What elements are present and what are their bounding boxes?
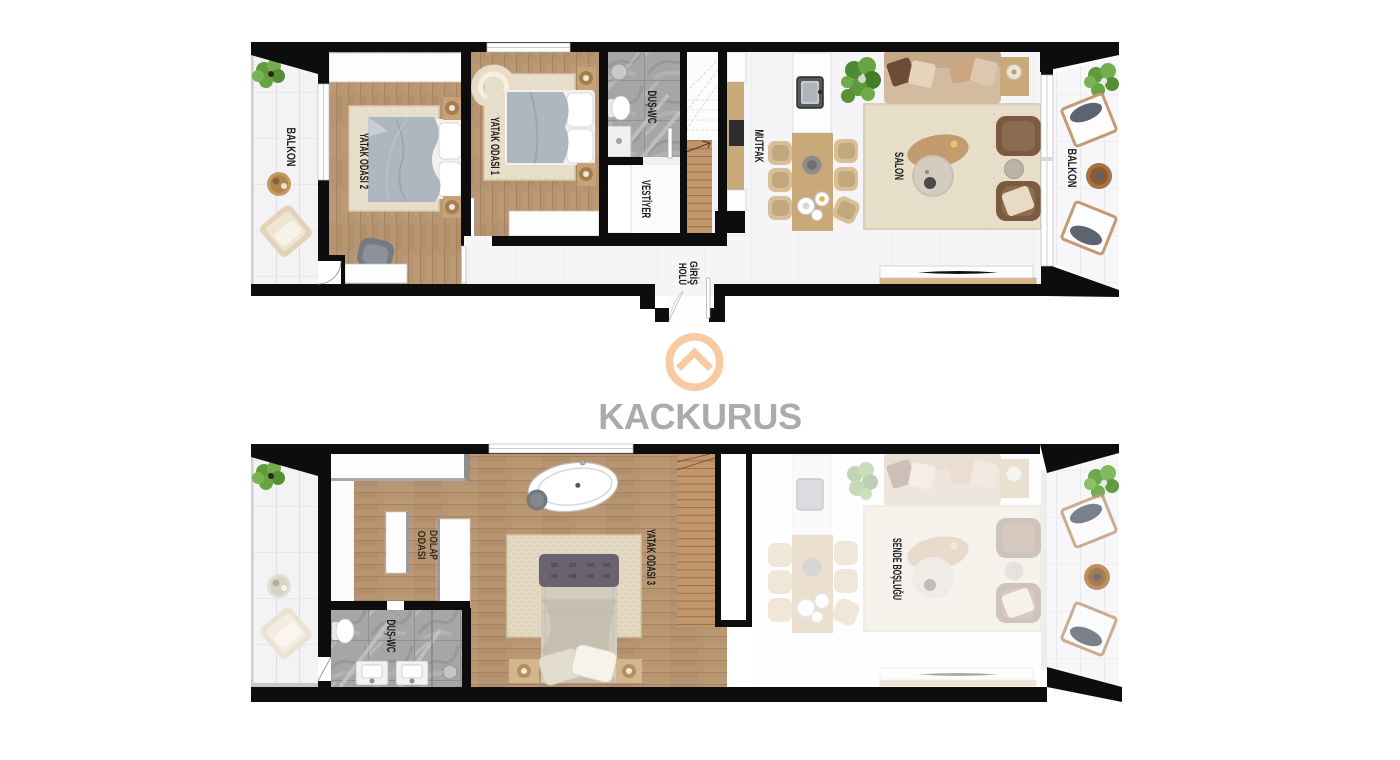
svg-text:BALKON: BALKON	[284, 128, 298, 167]
svg-text:YATAK ODASI 1: YATAK ODASI 1	[488, 117, 502, 175]
svg-text:DUŞ-WC: DUŞ-WC	[384, 620, 398, 653]
svg-text:YATAK ODASI 2: YATAK ODASI 2	[357, 133, 371, 189]
svg-text:HOLÜ: HOLÜ	[676, 263, 689, 285]
svg-text:SENDE BOŞLUĞU: SENDE BOŞLUĞU	[890, 538, 905, 600]
svg-text:ODASI: ODASI	[415, 531, 427, 560]
svg-text:YATAK ODASI 3: YATAK ODASI 3	[644, 529, 658, 585]
svg-text:VESTİYER: VESTİYER	[639, 180, 654, 218]
svg-text:BALKON: BALKON	[1065, 149, 1079, 188]
svg-text:DUŞ-WC: DUŞ-WC	[645, 91, 659, 124]
svg-text:KACKURUS: KACKURUS	[598, 396, 802, 437]
svg-text:SALON: SALON	[892, 152, 906, 180]
svg-text:MUTFAK: MUTFAK	[752, 130, 766, 163]
svg-text:DOLAP: DOLAP	[427, 530, 439, 560]
